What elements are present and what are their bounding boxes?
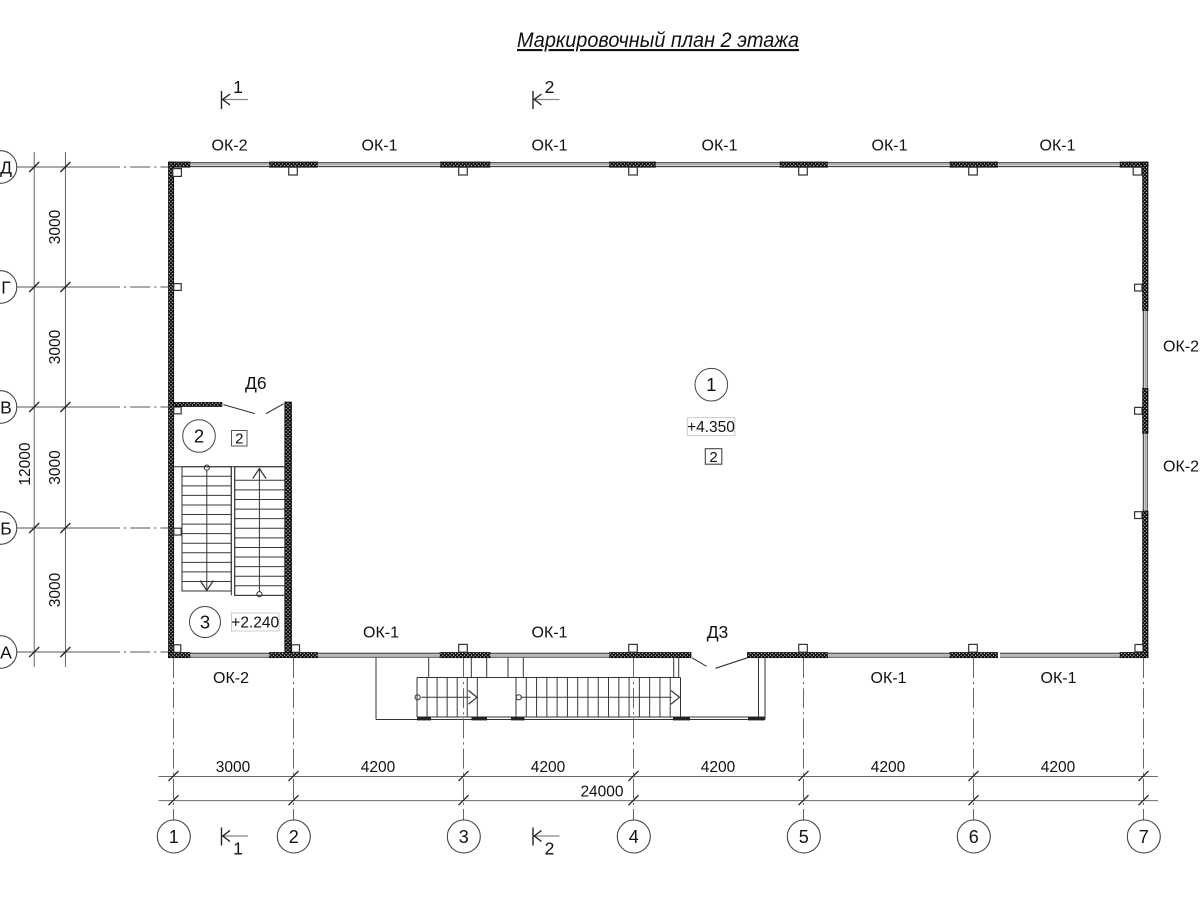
svg-text:4200: 4200 xyxy=(701,759,736,776)
svg-text:5: 5 xyxy=(799,827,809,847)
svg-text:ОК-2: ОК-2 xyxy=(212,138,248,155)
svg-text:3: 3 xyxy=(459,827,469,847)
svg-text:3000: 3000 xyxy=(47,572,64,607)
svg-text:В: В xyxy=(0,397,12,417)
svg-text:ОК-1: ОК-1 xyxy=(1041,670,1077,687)
svg-text:2: 2 xyxy=(545,839,555,859)
svg-text:ОК-2: ОК-2 xyxy=(1163,339,1199,356)
svg-text:2: 2 xyxy=(545,77,555,97)
svg-text:ОК-1: ОК-1 xyxy=(702,138,738,155)
svg-text:4: 4 xyxy=(629,827,639,847)
svg-text:Маркировочный план 2 этажа: Маркировочный план 2 этажа xyxy=(517,28,799,52)
svg-text:ОК-1: ОК-1 xyxy=(532,625,568,642)
svg-text:4200: 4200 xyxy=(531,759,566,776)
svg-text:3000: 3000 xyxy=(47,209,64,244)
svg-text:24000: 24000 xyxy=(580,784,623,801)
svg-text:ОК-1: ОК-1 xyxy=(363,625,399,642)
svg-text:Г: Г xyxy=(1,277,11,297)
svg-text:4200: 4200 xyxy=(1041,759,1076,776)
svg-text:3000: 3000 xyxy=(47,329,64,364)
svg-text:12000: 12000 xyxy=(17,442,34,485)
svg-text:ОК-2: ОК-2 xyxy=(213,670,249,687)
svg-text:1: 1 xyxy=(706,374,716,395)
svg-text:4200: 4200 xyxy=(361,759,396,776)
svg-text:+4.350: +4.350 xyxy=(687,419,735,436)
svg-text:ОК-1: ОК-1 xyxy=(871,670,907,687)
svg-text:4200: 4200 xyxy=(871,759,906,776)
svg-text:Д6: Д6 xyxy=(245,373,267,393)
svg-text:2: 2 xyxy=(709,449,717,466)
svg-text:Д: Д xyxy=(0,157,12,177)
svg-text:3000: 3000 xyxy=(47,450,64,485)
svg-text:ОК-1: ОК-1 xyxy=(362,138,398,155)
svg-text:2: 2 xyxy=(289,827,299,847)
svg-text:6: 6 xyxy=(969,827,979,847)
svg-text:2: 2 xyxy=(194,426,204,447)
svg-text:Д3: Д3 xyxy=(707,622,729,642)
svg-text:А: А xyxy=(0,642,12,662)
svg-text:1: 1 xyxy=(169,827,179,847)
svg-text:2: 2 xyxy=(235,431,243,448)
svg-text:1: 1 xyxy=(233,839,243,859)
svg-text:7: 7 xyxy=(1139,827,1149,847)
svg-text:ОК-1: ОК-1 xyxy=(532,138,568,155)
svg-text:3: 3 xyxy=(200,612,210,633)
svg-text:+2.240: +2.240 xyxy=(231,614,279,631)
svg-text:Б: Б xyxy=(0,518,11,538)
svg-text:3000: 3000 xyxy=(216,759,251,776)
svg-text:ОК-1: ОК-1 xyxy=(872,138,908,155)
svg-text:ОК-1: ОК-1 xyxy=(1040,138,1076,155)
svg-text:ОК-2: ОК-2 xyxy=(1163,459,1199,476)
svg-text:1: 1 xyxy=(233,77,243,97)
